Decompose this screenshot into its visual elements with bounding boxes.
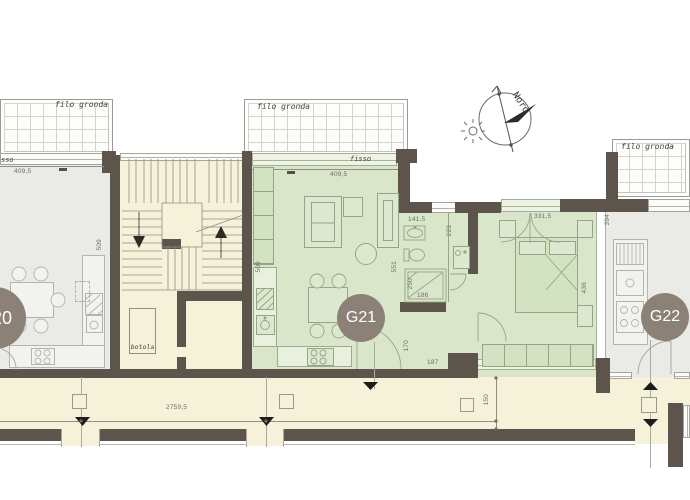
kitchen-sink	[616, 270, 644, 296]
window-stair-top	[120, 153, 243, 161]
wall-segment	[177, 291, 252, 301]
sun-rays	[461, 119, 485, 143]
dim-shower-width: 186	[417, 292, 428, 299]
parapet-outline	[0, 444, 62, 445]
passage-axis-line	[266, 377, 267, 447]
dimension-line	[0, 421, 497, 422]
wall-segment	[177, 301, 186, 347]
dimension-line	[496, 377, 497, 430]
passage-axis-line	[81, 377, 82, 447]
stove	[307, 348, 334, 366]
stair-landing-block	[162, 239, 181, 249]
parapet-wall	[668, 403, 683, 467]
stove	[31, 348, 55, 365]
balcony-column	[279, 394, 294, 409]
nightstand	[499, 220, 516, 238]
wall-segment	[252, 369, 448, 378]
passage-axis-line	[374, 342, 375, 389]
sofa	[253, 167, 274, 265]
eave-label-left: filo gronda	[55, 100, 108, 109]
nightstand	[577, 220, 593, 238]
opening-jamb	[61, 429, 62, 447]
stair-hatch-label: botola	[130, 343, 155, 351]
side-table	[343, 197, 363, 217]
window-bathroom	[430, 202, 456, 213]
kitchen-counter	[9, 345, 105, 368]
unit-badge-g22: G22	[641, 293, 689, 341]
stair-hatch-outline: botola	[129, 308, 156, 354]
sun-icon	[469, 127, 477, 135]
dimension-line	[0, 166, 104, 167]
wall-segment	[608, 199, 648, 212]
wardrobe	[482, 344, 594, 367]
window-fixed-label-g21: fisso	[350, 155, 371, 163]
kitchen-appliance	[616, 243, 644, 265]
kitchen-sink	[86, 315, 103, 333]
wall-segment	[398, 202, 432, 213]
dim-g20-depth: 509	[96, 239, 103, 250]
round-table	[355, 243, 377, 265]
opening-jamb	[246, 429, 247, 447]
parapet-wall	[283, 429, 635, 441]
north-compass	[461, 86, 536, 152]
balcony-step	[247, 429, 283, 446]
unit-label-g20: G20	[0, 308, 12, 329]
unit-label-g22: G22	[650, 308, 680, 326]
parapet-wall	[0, 429, 62, 441]
parapet-wall	[100, 429, 247, 441]
dim-bath-shaft: 223	[446, 225, 453, 236]
window-g22-south	[674, 372, 690, 379]
parapet-outline	[100, 444, 247, 445]
window-fixed-label-g20: sso	[1, 156, 14, 164]
nightstand	[577, 305, 593, 327]
wall-segment	[110, 369, 252, 378]
dim-bedroom-depth: 436	[581, 282, 588, 293]
dimension-tick	[59, 168, 67, 171]
pillow	[519, 241, 546, 255]
dim-g22-kitchen: 394	[604, 214, 611, 225]
party-wall-g21-g22	[596, 212, 606, 378]
balcony-column	[72, 394, 87, 409]
unit-badge-g21: G21	[337, 294, 385, 342]
balcony-step	[635, 429, 668, 444]
dim-balcony-depth: 150	[483, 394, 490, 405]
dimension-tick	[287, 171, 295, 174]
window-bedroom	[501, 199, 561, 212]
window-g20-top	[0, 153, 103, 165]
wall-segment	[596, 358, 610, 393]
washing-machine	[453, 246, 470, 269]
wall-segment	[177, 357, 186, 370]
parapet-outline	[283, 444, 635, 445]
dim-g21-depth-left: 509	[255, 261, 262, 272]
wall-segment	[0, 369, 110, 378]
eave-label-center: filo gronda	[257, 102, 310, 111]
eave-label-right: filo gronda	[621, 142, 674, 151]
appliance-dashed	[75, 281, 90, 302]
dim-balcony-length: 2759,5	[166, 404, 187, 411]
balcony-column	[641, 397, 657, 413]
dim-bedroom-window: 331,5	[534, 213, 551, 220]
dim-shower-depth: 250	[407, 278, 414, 289]
oven	[256, 288, 274, 310]
opening-jamb	[99, 429, 100, 447]
window-g21-fixed	[252, 153, 397, 166]
opening-jamb	[283, 429, 284, 447]
wall-segment	[242, 151, 252, 378]
dim-g21-width: 409,5	[330, 171, 347, 178]
unit-label-g21: G21	[346, 309, 376, 327]
kitchen-sink	[256, 315, 275, 335]
pillow	[549, 241, 576, 255]
balcony-tile-grid	[4, 103, 109, 152]
dim-bath-width: 141,5	[408, 216, 425, 223]
wall-segment	[400, 302, 446, 312]
tv-cabinet-inner	[383, 200, 393, 241]
coffee-table-inner	[311, 202, 335, 242]
balcony-column	[460, 398, 474, 412]
floor-plan: filo gronda filo gronda filo gronda	[0, 0, 690, 500]
wall-segment	[110, 155, 120, 378]
stove	[616, 301, 644, 333]
window-sill-right	[683, 405, 690, 438]
dim-hall-depth: 170	[403, 340, 410, 351]
dim-hall-width: 187	[427, 359, 438, 366]
window-g22-top	[648, 199, 690, 212]
wall-segment	[560, 199, 608, 212]
wall-segment	[606, 152, 618, 200]
dim-g20-width: 409,5	[14, 168, 31, 175]
wall-segment	[448, 353, 478, 378]
north-label: Nord	[510, 90, 532, 115]
dim-g21-depth-right: 551	[391, 261, 398, 272]
wall-segment	[455, 202, 501, 213]
